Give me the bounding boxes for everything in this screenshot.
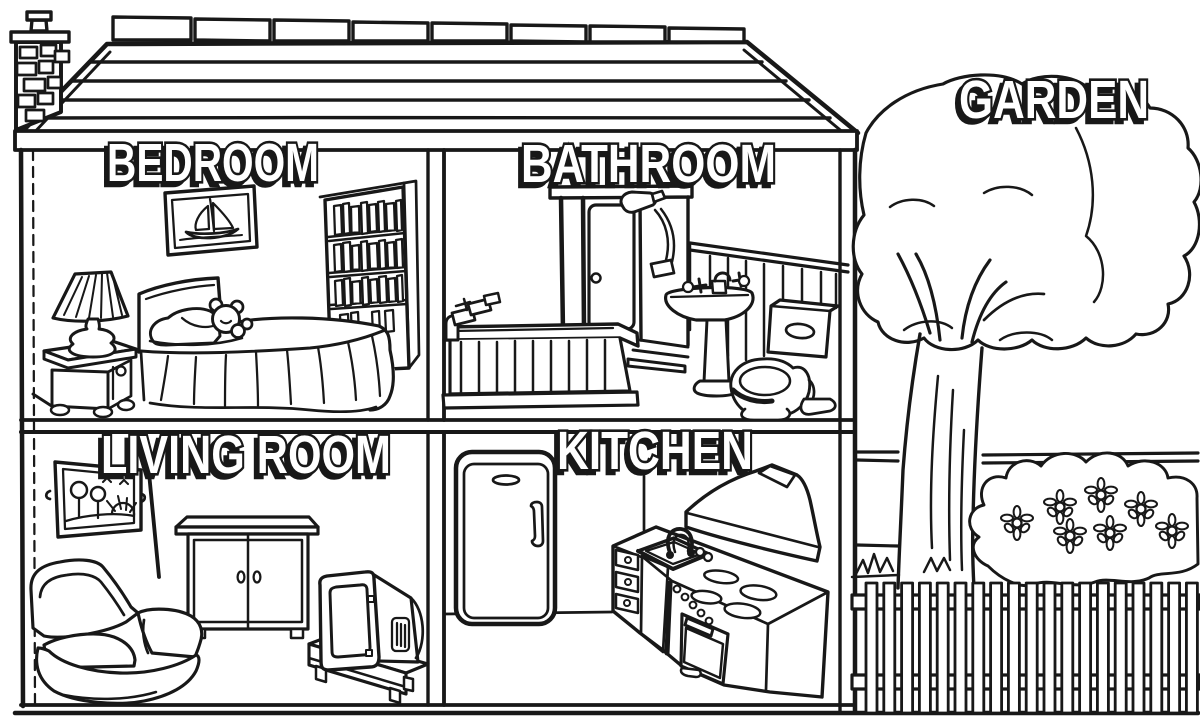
svg-text:BATHROOM: BATHROOM [521,134,776,194]
svg-text:GARDEN: GARDEN [959,70,1149,130]
svg-text:BEDROOM: BEDROOM [107,133,319,193]
svg-text:LIVING ROOM: LIVING ROOM [101,425,391,485]
svg-text:KITCHEN: KITCHEN [557,421,753,481]
